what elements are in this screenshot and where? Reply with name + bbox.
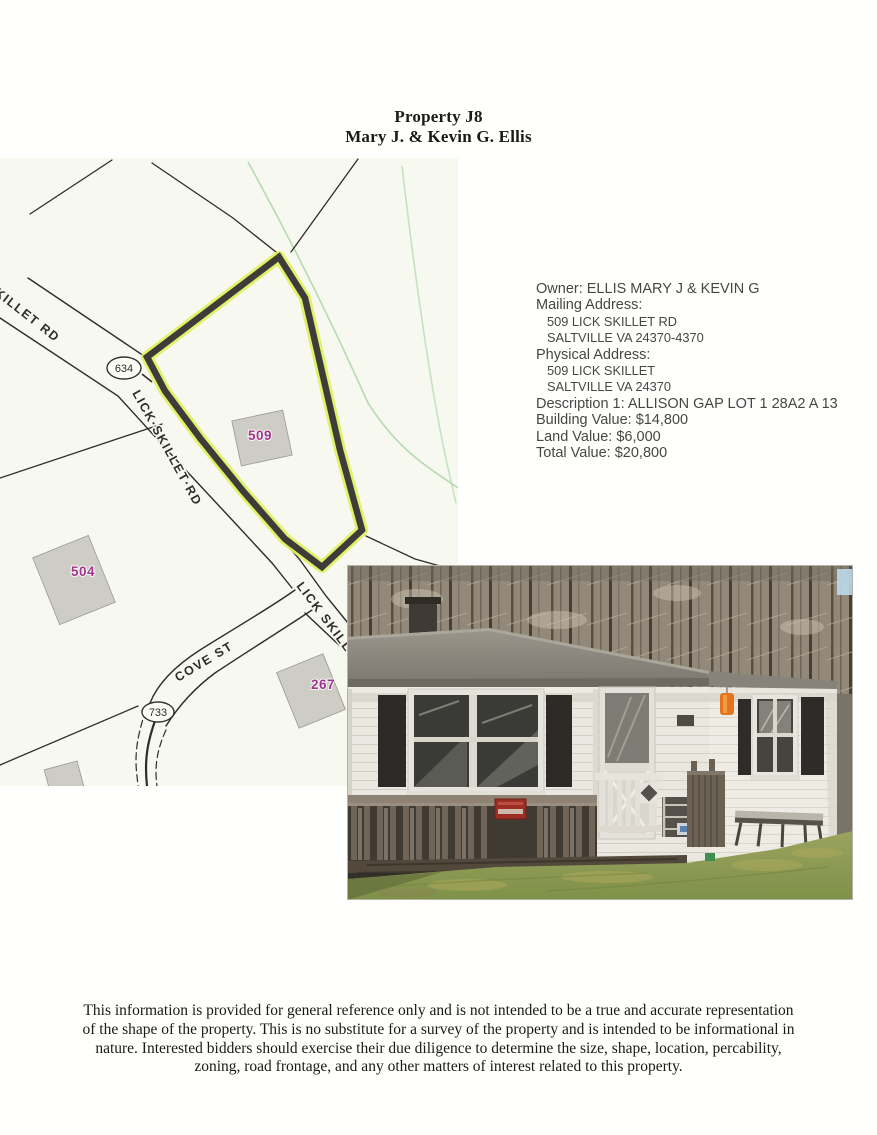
scanned-property-sheet: Property J8 Mary J. & Kevin G. Ellis: [0, 0, 877, 1135]
green-object: [705, 853, 715, 861]
owner-line: Owner: ELLIS MARY J & KEVIN G: [536, 281, 838, 297]
physical-city: SALTVILLE VA 24370: [536, 379, 838, 395]
route-733-label: 733: [149, 707, 167, 719]
wood-gate: [687, 759, 725, 847]
right-window-group: [738, 694, 824, 780]
property-id-title: Property J8: [0, 107, 877, 127]
trees-top-shade: [347, 565, 853, 581]
side-brush: [837, 694, 853, 844]
land-value-line: Land Value: $6,000: [536, 429, 838, 445]
physical-label: Physical Address:: [536, 347, 838, 363]
page-title: Property J8 Mary J. & Kevin G. Ellis: [0, 107, 877, 147]
mailing-city: SALTVILLE VA 24370-4370: [536, 330, 838, 346]
property-photo: [347, 565, 853, 900]
posted-sign: [495, 799, 526, 819]
mailing-label: Mailing Address:: [536, 297, 838, 313]
disclaimer-line-1: This information is provided for general…: [72, 1002, 805, 1021]
bucket-blue: [680, 826, 688, 832]
parcel-label-509: 509: [248, 428, 272, 443]
disclaimer-paragraph: This information is provided for general…: [72, 1002, 805, 1077]
shutter-right: [546, 695, 572, 787]
disclaimer-line-4: zoning, road frontage, and any other mat…: [72, 1058, 805, 1077]
description-line: Description 1: ALLISON GAP LOT 1 28A2 A …: [536, 396, 838, 412]
owner-name-title: Mary J. & Kevin G. Ellis: [0, 127, 877, 147]
parcel-label-267: 267: [311, 677, 335, 692]
route-shield-733: 733: [142, 702, 174, 722]
shutter-right: [801, 697, 824, 775]
shutter-left: [738, 699, 751, 775]
physical-street: 509 LICK SKILLET: [536, 363, 838, 379]
shutter-left: [378, 695, 406, 787]
sky-patch: [837, 569, 853, 595]
property-info-block: Owner: ELLIS MARY J & KEVIN G Mailing Ad…: [536, 281, 838, 461]
parcel-label-504: 504: [71, 564, 95, 579]
total-value-line: Total Value: $20,800: [536, 445, 838, 461]
disclaimer-line-2: of the shape of the property. This is no…: [72, 1021, 805, 1040]
route-634-label: 634: [115, 363, 133, 375]
building-value-line: Building Value: $14,800: [536, 412, 838, 428]
house-number-plaque: [677, 715, 694, 726]
mailing-street: 509 LICK SKILLET RD: [536, 314, 838, 330]
disclaimer-line-3: nature. Interested bidders should exerci…: [72, 1040, 805, 1059]
